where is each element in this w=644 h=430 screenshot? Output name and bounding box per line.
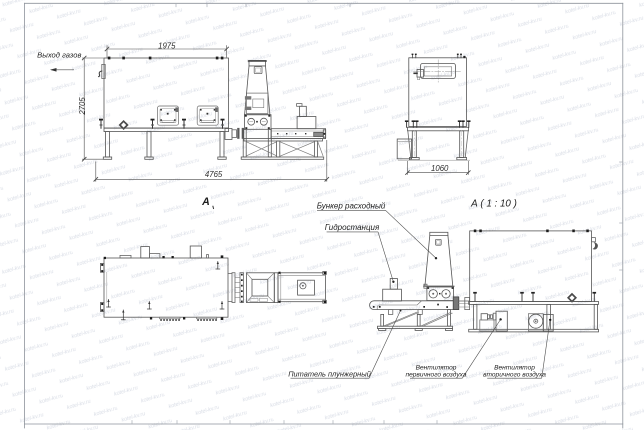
svg-text:Выход газов: Выход газов bbox=[37, 50, 81, 59]
svg-text:Вентилятор: Вентилятор bbox=[494, 364, 535, 371]
svg-text:Бункер расходный: Бункер расходный bbox=[317, 202, 386, 211]
svg-text:первичного воздуха: первичного воздуха bbox=[405, 371, 466, 379]
svg-text:1060: 1060 bbox=[431, 164, 449, 173]
svg-text:4765: 4765 bbox=[205, 170, 223, 179]
svg-text:1975: 1975 bbox=[158, 41, 176, 50]
svg-text:А: А bbox=[201, 196, 210, 208]
svg-text:Питатель плунжерный: Питатель плунжерный bbox=[288, 370, 371, 379]
svg-text:А ( 1 : 10 ): А ( 1 : 10 ) bbox=[470, 199, 517, 210]
svg-text:вторичного воздуха: вторичного воздуха bbox=[483, 371, 546, 379]
svg-text:Вентилятор: Вентилятор bbox=[416, 364, 457, 371]
svg-text:2705: 2705 bbox=[78, 97, 87, 116]
svg-text:Гидростанция: Гидростанция bbox=[325, 223, 380, 232]
